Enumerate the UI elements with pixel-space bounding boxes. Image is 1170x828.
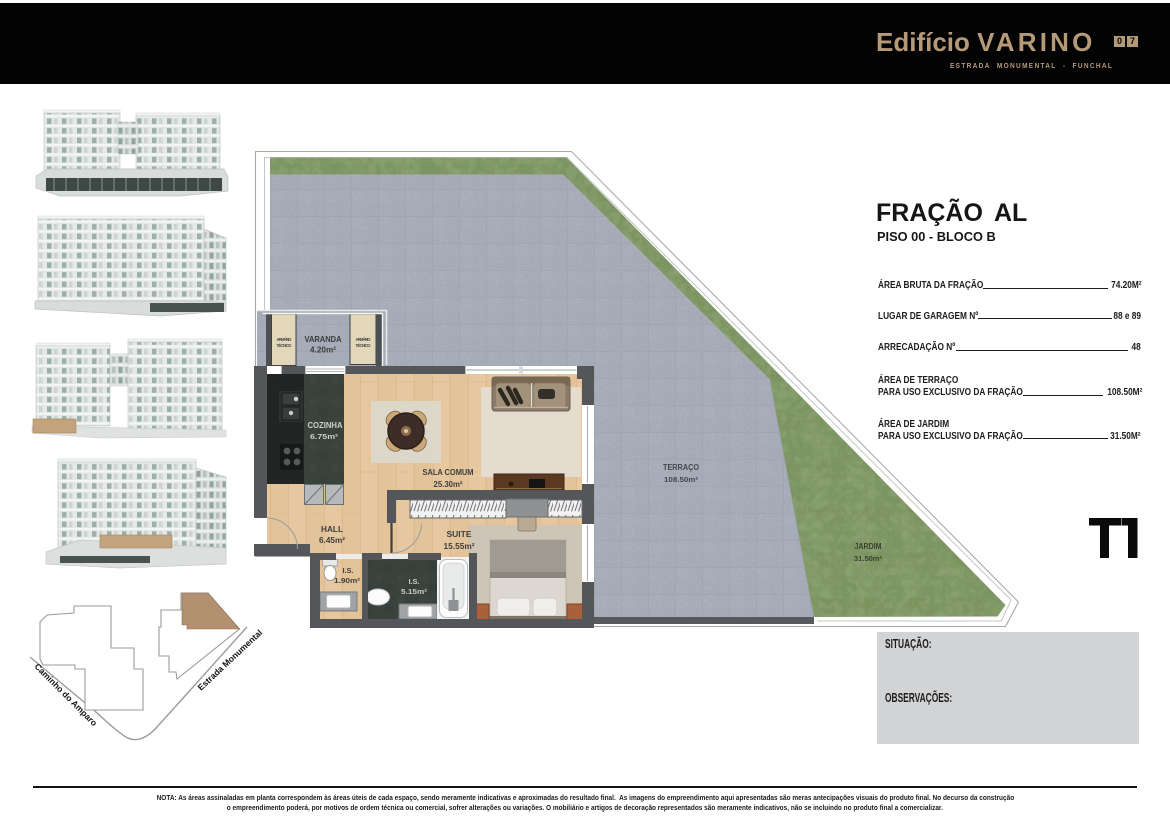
svg-text:25.30m²: 25.30m²	[434, 480, 463, 489]
svg-text:TÉCNICO: TÉCNICO	[277, 343, 293, 348]
svg-text:I.S.: I.S.	[409, 577, 420, 586]
svg-text:JARDIM: JARDIM	[855, 542, 882, 551]
svg-text:I.S.: I.S.	[343, 566, 354, 575]
svg-text:31.50m²: 31.50m²	[854, 554, 883, 563]
svg-text:5.15m²: 5.15m²	[401, 587, 428, 596]
svg-text:4.20m²: 4.20m²	[310, 346, 336, 355]
svg-text:108.50m²: 108.50m²	[664, 475, 699, 484]
svg-text:6.75m²: 6.75m²	[310, 432, 339, 441]
svg-text:15.55m²: 15.55m²	[444, 542, 475, 551]
svg-text:HALL: HALL	[321, 524, 343, 534]
svg-text:ARMÁRIO: ARMÁRIO	[356, 337, 372, 342]
svg-text:VARANDA: VARANDA	[305, 334, 342, 344]
svg-text:TÉCNICO: TÉCNICO	[356, 343, 372, 348]
svg-text:TERRAÇO: TERRAÇO	[663, 463, 699, 472]
svg-text:ARMÁRIO: ARMÁRIO	[277, 337, 293, 342]
svg-text:SALA COMUM: SALA COMUM	[423, 467, 474, 477]
svg-text:COZINHA: COZINHA	[308, 421, 343, 430]
svg-text:6.45m²: 6.45m²	[319, 536, 345, 545]
svg-text:1.90m²: 1.90m²	[334, 576, 361, 585]
svg-text:SUITE: SUITE	[447, 529, 472, 539]
